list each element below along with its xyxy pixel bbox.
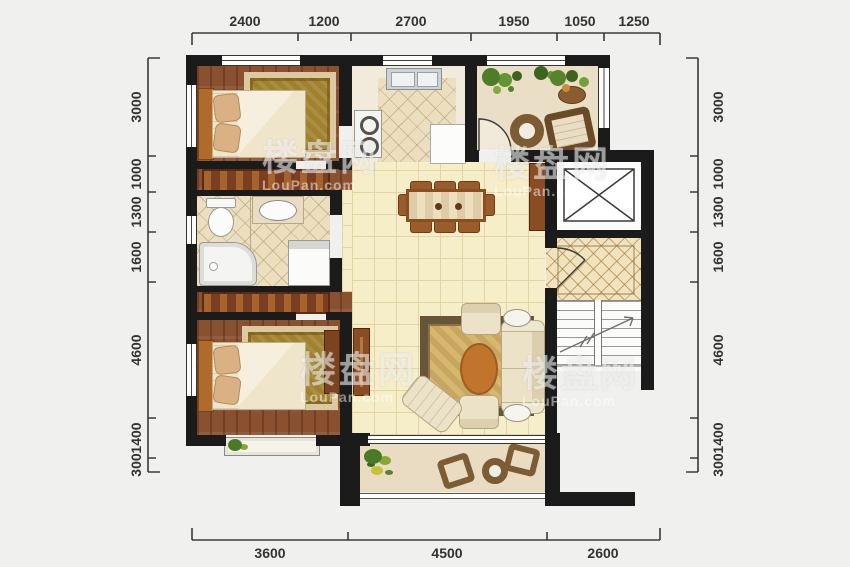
sliding-door <box>368 435 545 444</box>
basin <box>259 200 297 221</box>
sink-basin <box>391 72 415 87</box>
wall-segment <box>340 312 352 435</box>
wall-segment <box>186 161 296 169</box>
chair-back <box>462 304 500 313</box>
sofa-back <box>532 321 544 413</box>
wall-segment <box>186 190 342 196</box>
burner <box>360 137 379 156</box>
dimension-label: 1600 <box>710 227 726 287</box>
hallway-1-runner <box>202 169 330 192</box>
refrigerator <box>430 124 466 164</box>
pillow <box>212 345 241 376</box>
plate <box>455 203 462 210</box>
side-table <box>503 309 531 327</box>
armchair <box>461 303 501 335</box>
dimension-label: 3000 <box>128 77 144 137</box>
wall-segment <box>326 161 352 169</box>
plate <box>435 203 442 210</box>
dimension-label: 3600 <box>235 545 305 561</box>
dimension-label: 1600 <box>128 227 144 287</box>
plant-icon <box>534 66 548 80</box>
burner <box>360 116 379 135</box>
washer-panel <box>289 241 329 249</box>
rug-medallion <box>460 343 498 395</box>
wall-segment <box>186 435 226 446</box>
balcony-railing <box>360 493 545 499</box>
plant-icon <box>228 439 242 451</box>
pillow <box>212 374 242 405</box>
living-nook-floor <box>342 190 352 292</box>
dimension-label: 4600 <box>710 320 726 380</box>
plant-icon <box>364 449 382 464</box>
hallway-2-runner <box>202 292 330 314</box>
stair-center-rail <box>594 300 602 366</box>
round-table <box>510 114 544 148</box>
window <box>487 55 565 66</box>
dimension-label: 300 <box>710 435 726 495</box>
leaves <box>550 70 566 86</box>
window <box>186 85 197 147</box>
chair-back <box>460 419 498 428</box>
wall-segment <box>186 312 296 320</box>
bathtub-drain <box>209 262 218 271</box>
dimension-label: 4600 <box>128 320 144 380</box>
kitchen-sink <box>386 68 442 90</box>
window <box>222 55 300 66</box>
wall-segment <box>545 492 635 506</box>
wall-segment <box>330 190 342 215</box>
dimension-label: 1200 <box>296 13 352 29</box>
wall-segment <box>339 66 352 126</box>
pot <box>558 86 586 104</box>
window <box>186 344 197 396</box>
wall-segment <box>316 435 352 446</box>
wall-segment <box>465 150 479 162</box>
dimension-label: 1950 <box>486 13 542 29</box>
sofa <box>501 320 545 414</box>
sink-basin <box>417 72 438 87</box>
wall-segment <box>641 150 654 390</box>
bedroom-2-bed <box>198 338 306 412</box>
plant-icon <box>482 68 500 86</box>
dimension-label: 2700 <box>383 13 439 29</box>
window <box>598 68 610 128</box>
bedroom-2-wardrobe <box>324 330 340 394</box>
wall-segment <box>545 288 557 435</box>
wall-segment <box>545 150 557 248</box>
potted-plant-icon <box>548 70 592 110</box>
handle <box>360 337 363 387</box>
side-table <box>503 404 531 422</box>
floor-plan-page: 2400 1200 2700 1950 1050 1250 3600 4500 … <box>0 0 850 567</box>
quilt-fold <box>238 91 294 155</box>
elevator-shaft <box>557 162 641 230</box>
dining-table <box>406 189 486 222</box>
toilet-bowl <box>208 207 234 237</box>
dimension-label: 2400 <box>217 13 273 29</box>
stove <box>354 110 382 158</box>
bathtub <box>199 242 257 286</box>
left-ruler <box>148 58 160 472</box>
dimension-label: 3000 <box>710 77 726 137</box>
wall-segment <box>186 286 342 292</box>
right-ruler <box>686 58 698 472</box>
washing-machine <box>288 240 330 286</box>
tv-cabinet <box>353 328 370 396</box>
foyer-floor <box>546 238 641 300</box>
pillow <box>212 122 242 153</box>
pillow <box>212 93 241 124</box>
wall-segment <box>557 230 641 238</box>
dimension-label: 300 <box>128 435 144 495</box>
window <box>186 216 197 244</box>
window <box>383 55 432 66</box>
quilt-fold <box>238 343 294 407</box>
dimension-label: 1050 <box>552 13 608 29</box>
dimension-label: 2600 <box>568 545 638 561</box>
dimension-label: 4500 <box>412 545 482 561</box>
armchair <box>459 395 499 429</box>
top-ruler <box>192 33 660 45</box>
wall-segment <box>465 66 477 162</box>
bottom-ruler <box>192 528 660 540</box>
dimension-label: 1250 <box>606 13 662 29</box>
bedroom-1-bed <box>198 86 306 160</box>
